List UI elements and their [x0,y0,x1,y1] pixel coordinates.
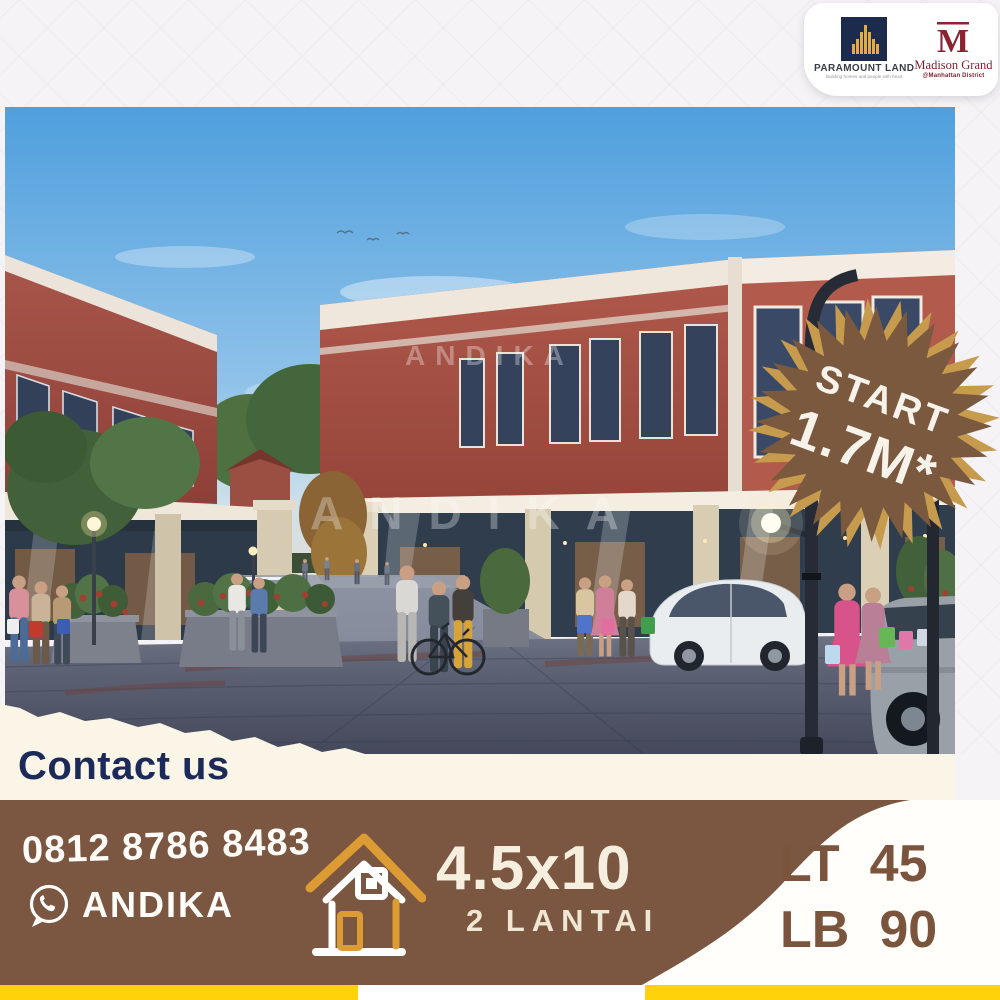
phone-number: 0812 8786 8483 [21,821,311,873]
area-specs: LT 45 LB 90 [780,838,937,956]
unit-size: 4.5x10 [436,833,632,904]
house-icon [296,812,426,962]
contact-person-name: ANDIKA [82,884,234,926]
paramount-land-tagline: Building homes and people with heart [826,75,903,80]
land-area-row: LT 45 [780,838,937,890]
white-car [650,580,811,671]
real-estate-poster: Salt'nCheese Harmonie [0,0,1000,1000]
paramount-land-logo: PARAMOUNT LAND Building homes and people… [814,17,914,80]
lb-label: LB [780,904,849,956]
paramount-land-icon [841,17,887,61]
watermark: ANDIKA [310,487,645,539]
bottom-strip-gap [358,985,645,1000]
watermark: ANDIKA [405,340,574,371]
bottom-accent-strip [0,985,358,1000]
madison-grand-name: Madison Grand [914,59,992,72]
lb-value: 90 [879,904,937,956]
building-area-row: LB 90 [780,904,937,956]
lt-label: LT [780,838,840,890]
bottom-accent-strip [645,985,1000,1000]
price-starburst-badge: START 1.7M* [745,295,1000,553]
lt-value: 45 [870,838,928,890]
contact-heading: Contact us [18,744,230,789]
developer-logo-card: PARAMOUNT LAND Building homes and people… [804,3,998,96]
madison-monogram: M [937,23,969,58]
paramount-land-name: PARAMOUNT LAND [814,64,914,75]
madison-grand-logo: M Madison Grand @Manhattan District [914,18,992,79]
whatsapp-contact: ANDIKA [26,882,234,928]
whatsapp-icon [26,882,72,928]
madison-grand-icon: M [933,18,973,58]
madison-grand-district: @Manhattan District [922,73,984,79]
